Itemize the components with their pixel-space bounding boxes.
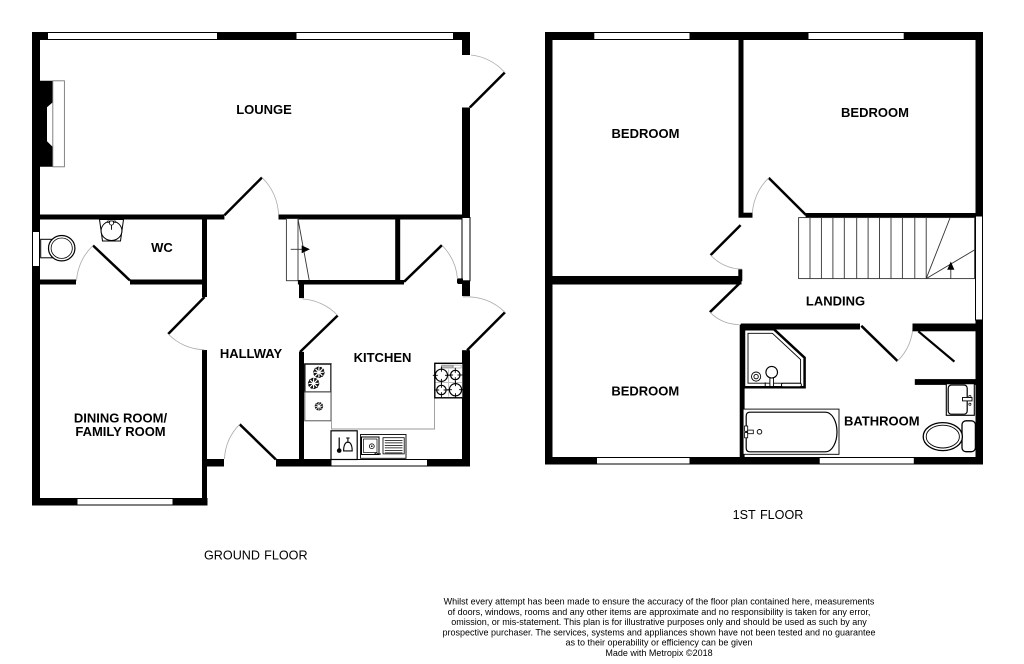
svg-text:LANDING: LANDING <box>806 294 865 309</box>
svg-text:BATHROOM: BATHROOM <box>844 414 920 429</box>
svg-text:of doors, windows, rooms and a: of doors, windows, rooms and any other i… <box>448 607 871 617</box>
svg-text:as to their operability or eff: as to their operability or efficiency ca… <box>566 638 753 648</box>
svg-text:BEDROOM: BEDROOM <box>841 105 909 120</box>
svg-text:HALLWAY: HALLWAY <box>220 346 283 361</box>
svg-text:Made with Metropix ©2018: Made with Metropix ©2018 <box>605 648 712 658</box>
svg-text:GROUND FLOOR: GROUND FLOOR <box>204 549 308 563</box>
svg-text:1ST FLOOR: 1ST FLOOR <box>733 508 804 522</box>
svg-text:WC: WC <box>151 240 173 255</box>
svg-text:Whilst every attempt has been: Whilst every attempt has been made to en… <box>444 597 875 607</box>
svg-text:FAMILY ROOM: FAMILY ROOM <box>75 424 165 439</box>
svg-text:BEDROOM: BEDROOM <box>612 126 680 141</box>
svg-text:BEDROOM: BEDROOM <box>611 384 679 399</box>
svg-text:prospective purchaser. The ser: prospective purchaser. The services, sys… <box>442 627 875 637</box>
svg-text:KITCHEN: KITCHEN <box>354 350 412 365</box>
svg-text:omission, or mis-statement. Th: omission, or mis-statement. This plan is… <box>451 617 867 627</box>
svg-text:LOUNGE: LOUNGE <box>236 102 292 117</box>
